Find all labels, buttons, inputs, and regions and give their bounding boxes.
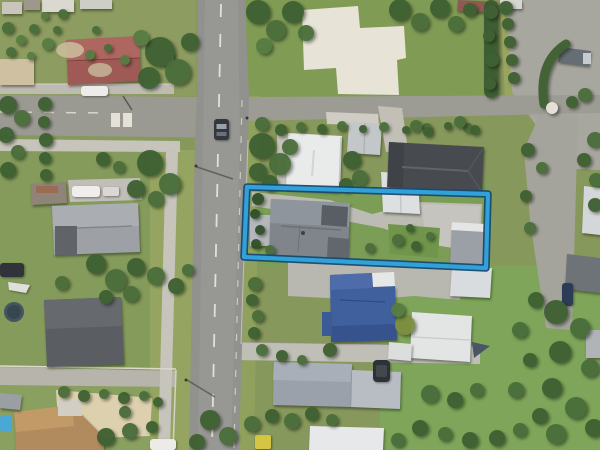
tree	[512, 322, 528, 338]
garden-shed-2	[24, 0, 40, 10]
tree	[248, 277, 262, 291]
tree	[566, 96, 578, 108]
tree	[463, 3, 477, 17]
tree	[138, 67, 160, 89]
tree	[343, 151, 361, 169]
tree	[265, 409, 279, 423]
tree	[148, 191, 164, 207]
tree	[470, 125, 480, 135]
footpath-south	[0, 139, 180, 152]
house-dark-west-wing	[388, 142, 404, 188]
house-left-mid-dark-wing	[55, 226, 77, 255]
tree	[249, 133, 275, 159]
tree	[38, 97, 52, 111]
tree	[55, 276, 69, 290]
tree	[92, 26, 100, 34]
tree	[137, 150, 163, 176]
tree	[454, 116, 466, 128]
tree	[389, 0, 411, 21]
tree	[39, 133, 53, 147]
tree	[284, 413, 300, 429]
power-pole	[246, 117, 249, 120]
tree	[379, 122, 389, 132]
tree	[165, 59, 191, 85]
tree	[447, 392, 463, 408]
tree	[411, 241, 421, 251]
tree	[392, 234, 404, 246]
tree	[448, 16, 464, 32]
garage-left-mid-rust	[36, 186, 58, 193]
car-blue-right	[562, 283, 573, 306]
road-marking-block-2	[123, 113, 132, 127]
car-on-road-windshield	[217, 124, 227, 129]
tree	[97, 428, 115, 446]
car-on-road	[214, 119, 229, 140]
house-boundary-dark-ne	[321, 205, 348, 227]
tree	[2, 22, 14, 34]
tree	[127, 258, 145, 276]
tree	[251, 239, 261, 249]
tree	[470, 383, 484, 397]
building-white-bottom-center	[309, 426, 384, 450]
tree	[14, 110, 30, 126]
tree	[123, 286, 139, 302]
tree	[411, 13, 429, 31]
road-marking-block-1	[111, 113, 120, 127]
tree	[296, 122, 306, 132]
shed-right-edge-bottom	[586, 330, 600, 358]
tree	[182, 264, 194, 276]
house-blue-white-notch	[372, 272, 395, 287]
tree	[246, 0, 270, 24]
tree	[6, 47, 16, 57]
van-white-left-mid	[72, 186, 100, 197]
tree	[565, 397, 587, 419]
tree	[444, 122, 452, 130]
tree	[255, 225, 265, 235]
tree	[252, 193, 264, 205]
pool-bottom-left	[0, 415, 12, 432]
tree	[86, 254, 106, 274]
tree	[406, 224, 414, 232]
tree	[119, 406, 131, 418]
tree	[542, 378, 562, 398]
tree	[0, 162, 16, 178]
tree	[58, 386, 70, 398]
tree	[282, 139, 298, 155]
power-pole	[185, 379, 188, 382]
tree	[462, 432, 478, 448]
car-white-bottom	[150, 439, 176, 450]
tree	[549, 341, 571, 363]
tree	[146, 421, 158, 433]
tree	[523, 353, 537, 367]
suv-dark-roof	[376, 365, 387, 377]
aerial-map-view[interactable]	[0, 0, 600, 450]
tree	[502, 18, 514, 30]
tree	[489, 430, 505, 446]
tree	[118, 392, 130, 404]
tree	[256, 344, 268, 356]
tree	[78, 390, 90, 402]
tree	[421, 385, 439, 403]
tree	[577, 153, 591, 167]
tree	[438, 427, 452, 441]
tree	[528, 292, 544, 308]
tree	[520, 190, 532, 202]
tree	[256, 38, 272, 54]
tree	[244, 416, 260, 432]
shed-top-edge-2	[80, 0, 112, 9]
tree	[38, 116, 50, 128]
tree	[484, 5, 498, 19]
tree	[27, 52, 35, 60]
car-white-top-left	[81, 86, 108, 96]
house-boundary-dark-sw	[327, 237, 350, 259]
tree	[508, 72, 520, 84]
house-left-mid-facet	[52, 203, 139, 229]
tree	[189, 434, 205, 450]
tree	[85, 50, 95, 60]
shed-top-edge-1	[42, 0, 74, 12]
garden-path-blob-2	[88, 63, 112, 77]
tree	[99, 290, 113, 304]
building-white-se-wing	[388, 342, 412, 361]
tree	[255, 117, 269, 131]
tree	[546, 424, 566, 444]
tree	[326, 414, 338, 426]
tree	[412, 420, 428, 436]
car-dark-left-edge	[0, 263, 24, 277]
tree	[337, 121, 347, 131]
tree-yellow-green	[395, 315, 415, 335]
tree	[200, 410, 220, 430]
caravan-cap	[583, 53, 591, 64]
tree	[513, 423, 527, 437]
tree	[168, 278, 184, 294]
tree	[532, 408, 548, 424]
tree	[282, 1, 304, 23]
tree	[317, 124, 327, 134]
house-bottom-middle-facet	[273, 362, 352, 382]
bus-yellow-bottom	[255, 435, 271, 449]
tree	[544, 300, 568, 324]
tree	[113, 161, 125, 173]
tree	[570, 318, 590, 338]
tree	[391, 303, 405, 317]
tree	[252, 310, 264, 322]
tree	[365, 243, 375, 253]
tree	[147, 267, 165, 285]
house-boundary-chimney	[301, 231, 305, 235]
tree	[139, 391, 149, 401]
tree	[40, 169, 52, 181]
tree	[96, 152, 110, 166]
tree	[42, 38, 54, 50]
tree	[506, 54, 518, 66]
tree	[159, 173, 181, 195]
tree	[250, 209, 260, 219]
tree	[153, 397, 163, 407]
car-silver-left-mid	[103, 187, 119, 196]
aerial-canvas	[0, 0, 600, 450]
tree	[298, 25, 314, 41]
tree	[499, 1, 513, 15]
garden-path-blob-1	[56, 42, 84, 58]
tree	[483, 30, 495, 42]
tree	[39, 152, 51, 164]
tree	[105, 269, 127, 291]
tree	[246, 294, 258, 306]
tree	[58, 9, 68, 19]
house-blue-ext-west	[322, 312, 332, 336]
tree	[323, 343, 337, 357]
tree	[127, 180, 145, 198]
tree	[581, 359, 599, 377]
house-blue-roof-south	[331, 324, 397, 342]
tree	[120, 55, 130, 65]
tree	[219, 427, 237, 445]
tree	[275, 124, 287, 136]
tree	[410, 120, 422, 132]
tree	[297, 355, 307, 365]
tree	[391, 433, 405, 447]
garden-shed-1	[2, 2, 22, 14]
tree	[269, 153, 291, 175]
tree	[133, 30, 149, 46]
tree	[508, 382, 524, 398]
tree	[578, 88, 592, 102]
tree	[181, 33, 199, 51]
tree	[122, 423, 138, 439]
tree	[536, 162, 548, 174]
house-tan-white-wing	[58, 400, 82, 416]
tree	[359, 125, 367, 133]
tree	[352, 170, 368, 186]
tree	[504, 36, 516, 48]
power-pole	[195, 165, 198, 168]
house-blue-roof-facet	[330, 273, 372, 290]
tree	[423, 127, 433, 137]
tree	[305, 407, 319, 421]
tree	[29, 24, 39, 34]
tree	[484, 78, 496, 90]
garage-left-mid	[31, 182, 67, 205]
tree	[524, 222, 536, 234]
tree	[11, 145, 25, 159]
tree	[426, 232, 434, 240]
building-tan-left-edge	[0, 59, 34, 85]
tree	[485, 53, 499, 67]
tree	[104, 44, 112, 52]
tree	[16, 35, 26, 45]
tree	[402, 126, 410, 134]
tree	[276, 350, 288, 362]
tree	[266, 20, 286, 40]
tree	[248, 327, 260, 339]
tree	[41, 12, 49, 20]
pool-round-left-inner	[7, 305, 21, 319]
car-on-road-rear	[217, 132, 227, 136]
roof-corner-bottom-left	[0, 393, 22, 410]
tree	[521, 143, 535, 157]
tree	[99, 389, 109, 399]
tree	[265, 245, 275, 255]
tree	[53, 26, 61, 34]
flower-bush-white	[546, 102, 558, 114]
